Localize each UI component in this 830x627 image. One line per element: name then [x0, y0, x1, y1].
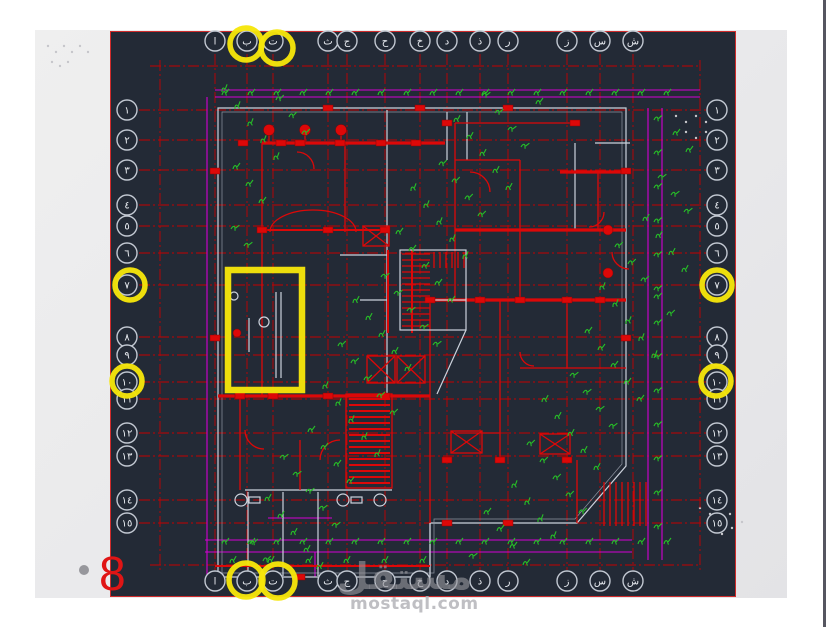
cad-canvas [110, 31, 736, 597]
page-background: ااببتتثثججححخخددذذررززسسشش١١٢٢٣٣٤٤٥٥٦٦٧٧… [0, 0, 830, 627]
list-bullet-dot [79, 565, 89, 575]
watermark-logo: مستقل [356, 556, 472, 598]
watermark-domain: mostaql.com [350, 594, 478, 614]
page-number: 8 [99, 551, 126, 599]
window-edge-line [823, 0, 826, 627]
